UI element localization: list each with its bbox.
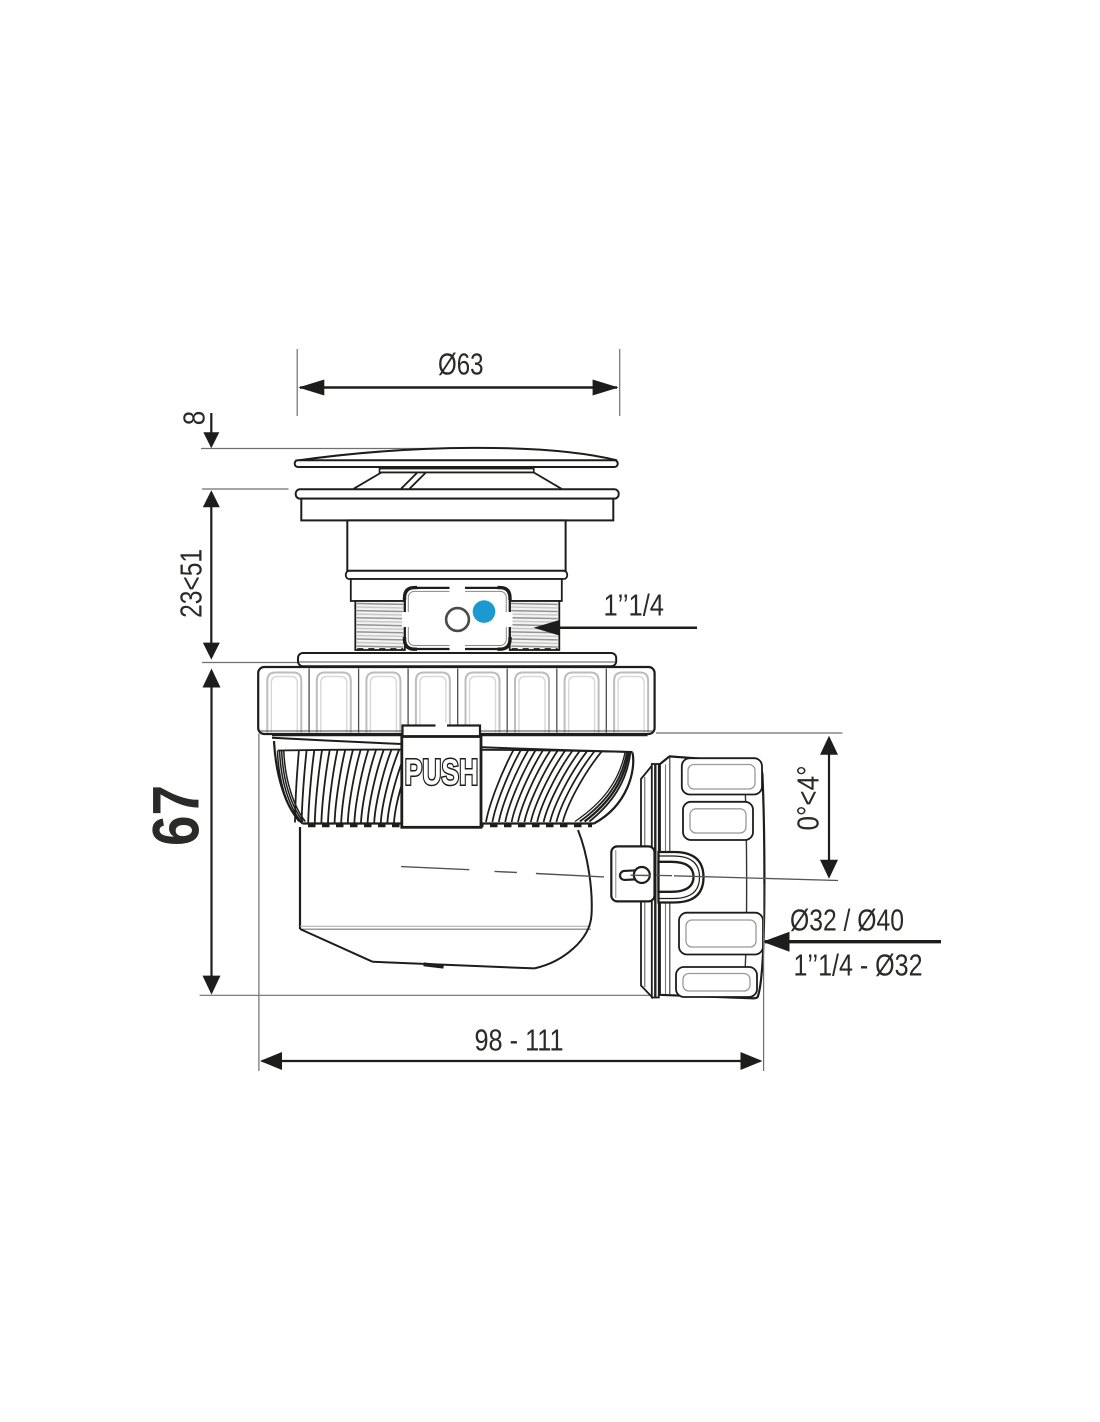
- svg-text:PUSH: PUSH: [405, 751, 479, 792]
- svg-text:Ø32 / Ø40: Ø32 / Ø40: [790, 904, 904, 938]
- svg-text:67: 67: [139, 785, 213, 846]
- svg-text:8: 8: [178, 411, 212, 426]
- svg-text:98 - 111: 98 - 111: [475, 1024, 564, 1058]
- svg-text:1’’1/4 - Ø32: 1’’1/4 - Ø32: [794, 949, 923, 983]
- svg-text:23<51: 23<51: [175, 549, 209, 618]
- svg-text:1’’1/4: 1’’1/4: [604, 589, 665, 623]
- svg-text:0°<4°: 0°<4°: [792, 766, 826, 831]
- svg-text:Ø63: Ø63: [438, 348, 484, 382]
